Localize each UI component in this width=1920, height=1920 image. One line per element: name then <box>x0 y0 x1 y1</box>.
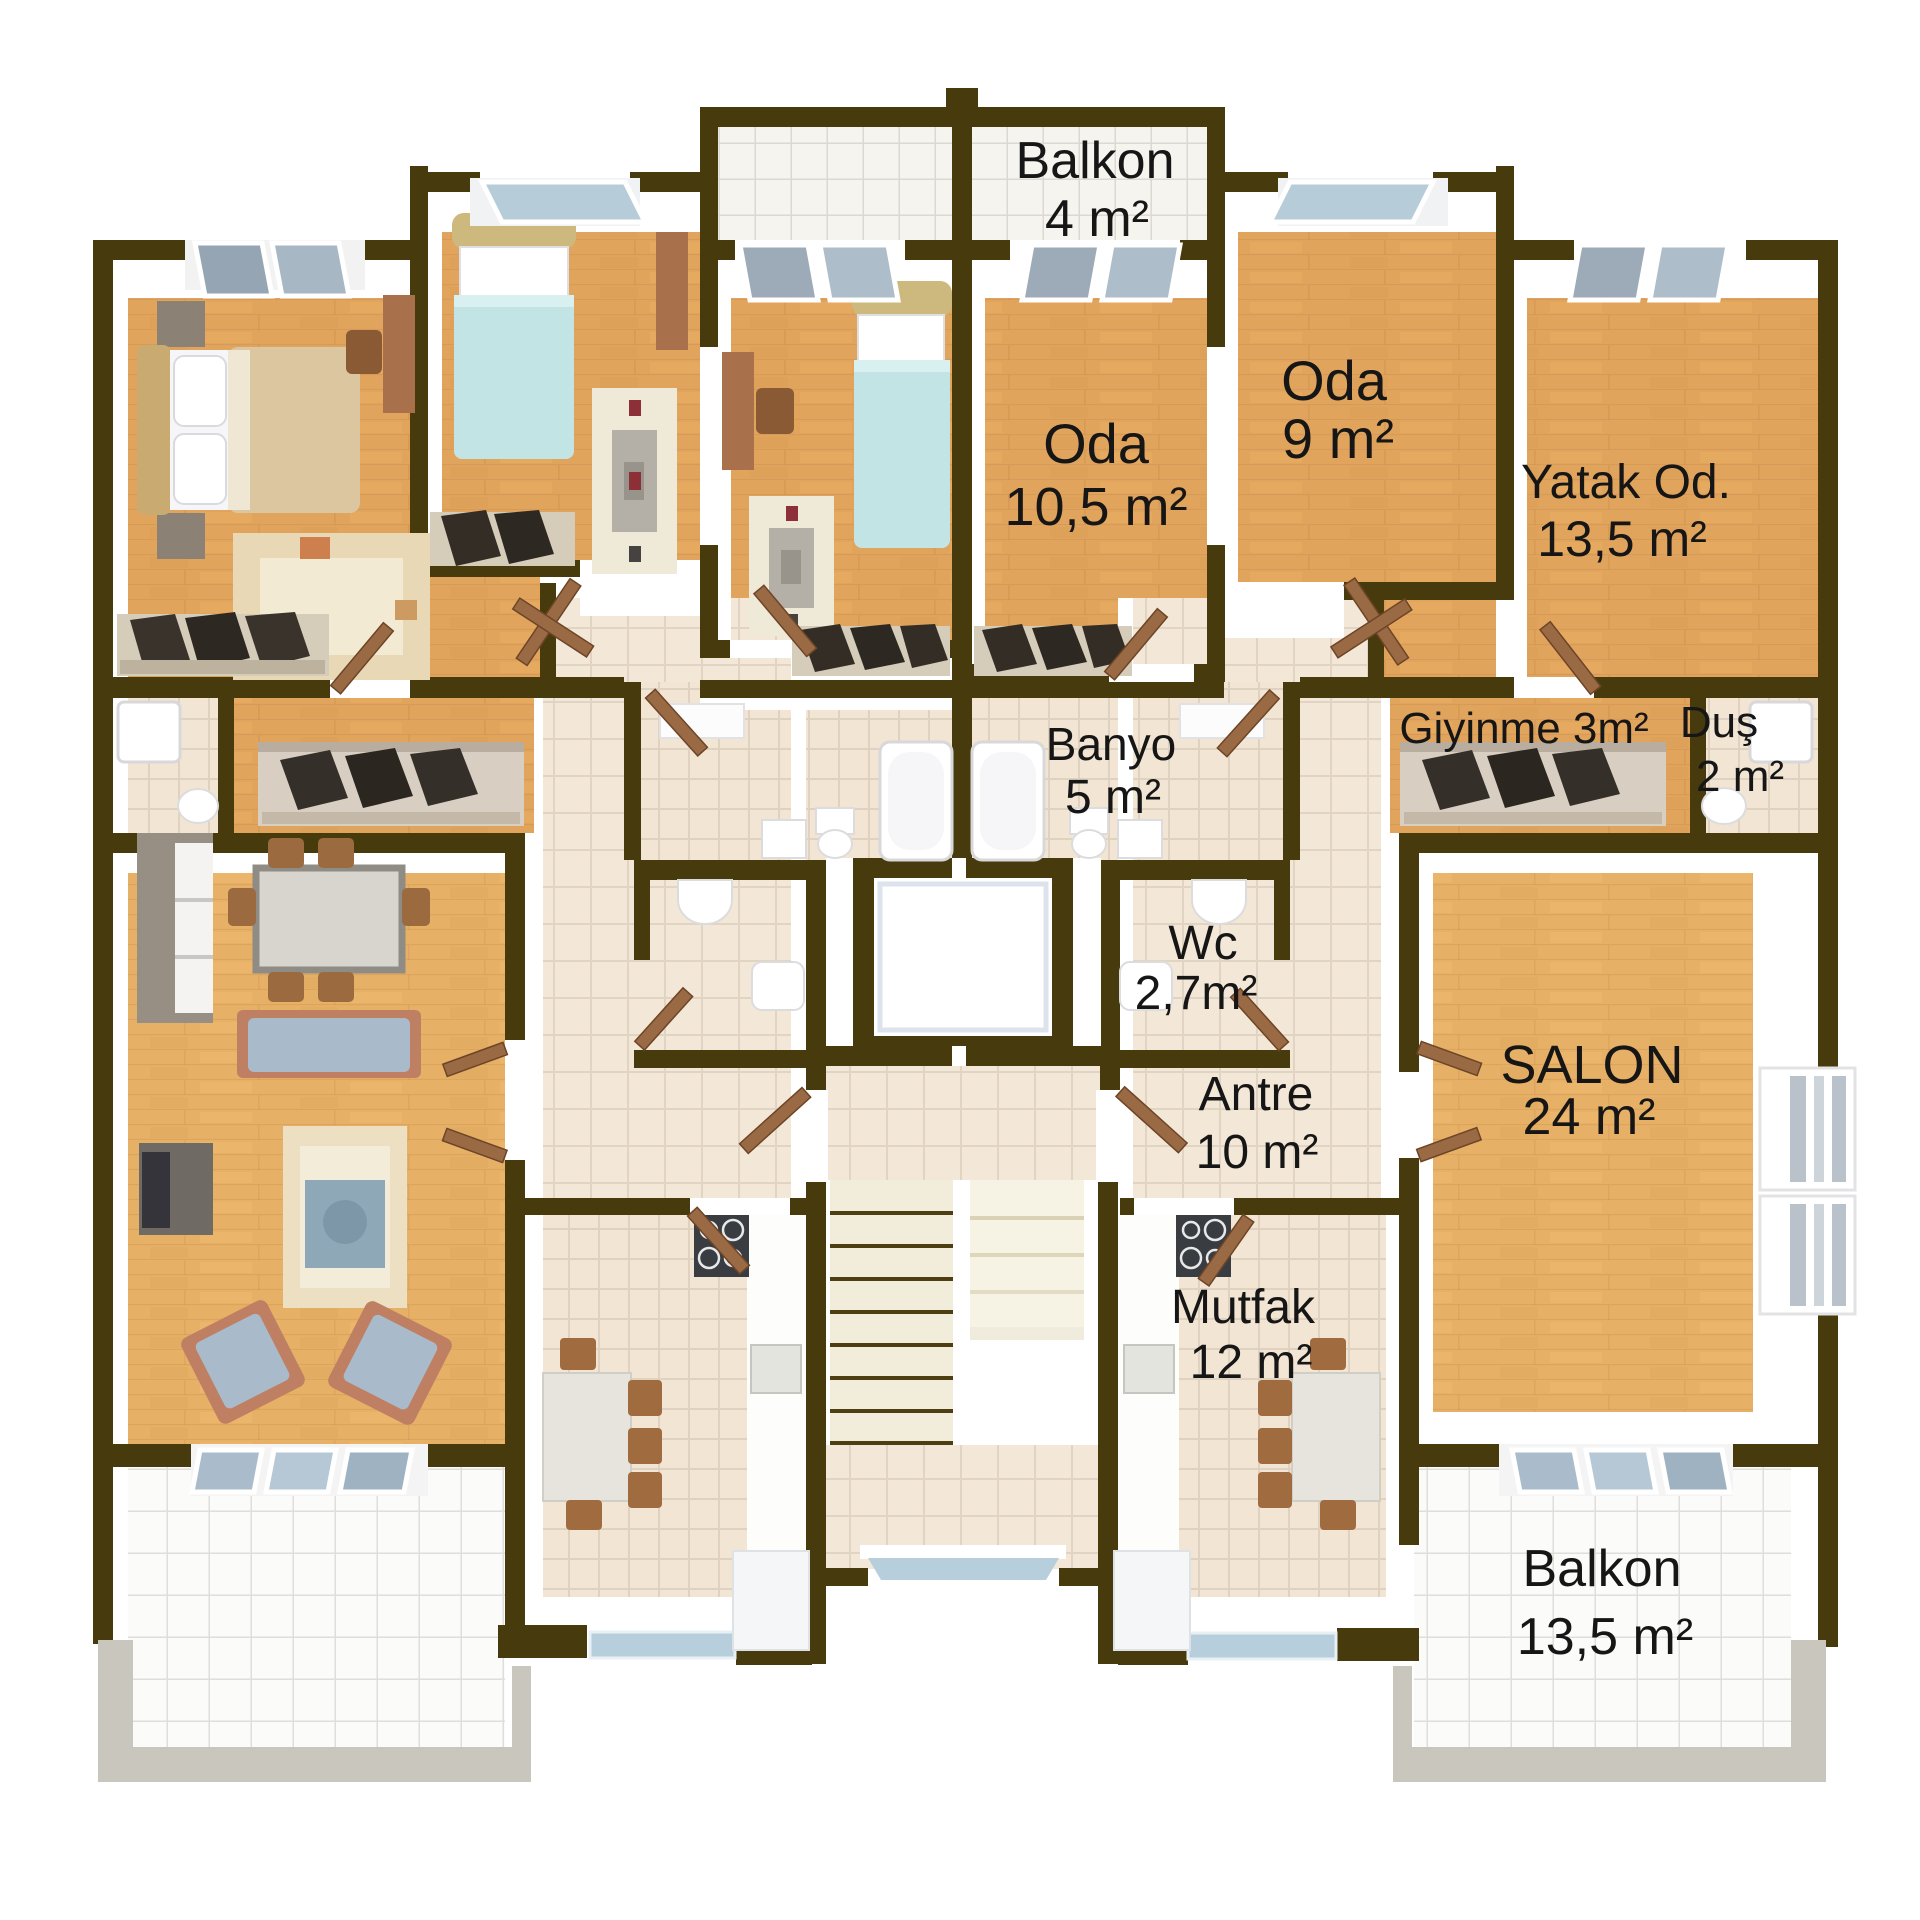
svg-text:24 m²: 24 m² <box>1523 1088 1656 1146</box>
svg-text:5 m²: 5 m² <box>1065 771 1161 824</box>
svg-text:2,7m²: 2,7m² <box>1135 967 1258 1020</box>
svg-text:9 m²: 9 m² <box>1282 407 1394 470</box>
svg-text:Balkon: Balkon <box>1016 132 1175 190</box>
svg-text:12 m²: 12 m² <box>1190 1336 1313 1389</box>
svg-text:Mutfak: Mutfak <box>1171 1281 1316 1334</box>
svg-text:Oda: Oda <box>1281 349 1388 412</box>
svg-text:Duş: Duş <box>1680 698 1758 747</box>
svg-text:2 m²: 2 m² <box>1696 752 1784 801</box>
svg-text:13,5 m²: 13,5 m² <box>1537 511 1707 567</box>
svg-text:Wc: Wc <box>1168 917 1237 970</box>
svg-text:Banyo: Banyo <box>1046 718 1176 770</box>
svg-text:Balkon: Balkon <box>1523 1540 1682 1598</box>
svg-text:10,5 m²: 10,5 m² <box>1004 477 1187 537</box>
svg-text:4 m²: 4 m² <box>1045 190 1149 248</box>
svg-text:Yatak Od.: Yatak Od. <box>1521 456 1731 509</box>
svg-text:Giyinme 3m²: Giyinme 3m² <box>1399 704 1648 753</box>
svg-text:13,5 m²: 13,5 m² <box>1517 1608 1693 1666</box>
svg-text:10 m²: 10 m² <box>1196 1126 1319 1179</box>
svg-text:Antre: Antre <box>1199 1068 1314 1121</box>
svg-text:Oda: Oda <box>1043 412 1150 475</box>
svg-text:SALON: SALON <box>1500 1035 1683 1095</box>
